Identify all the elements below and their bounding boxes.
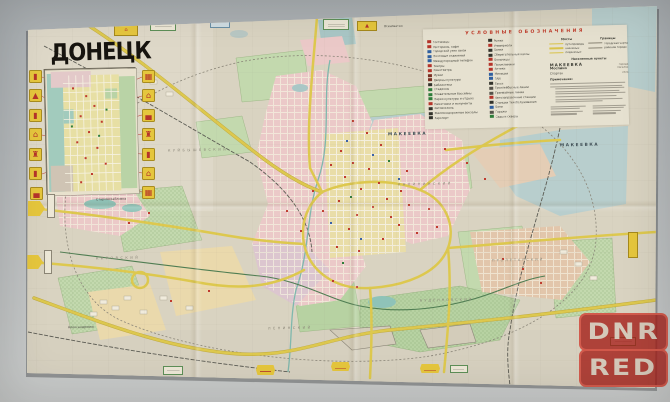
legend-symbol (490, 106, 494, 109)
place-label: Старомихайловка (96, 197, 126, 202)
map-sheet: ▮ ▲ ▮ ⌂ ♜ ▮ ▄ ▦ ⌂ ▄ ♜ ▮ (0, 0, 670, 402)
edge-road-sign (420, 364, 440, 373)
legend-symbol (489, 87, 493, 90)
legend-label: Аэропорт (434, 116, 448, 120)
landmark-badge-icon: ⌂ (142, 167, 155, 180)
legend-symbol (427, 50, 431, 53)
landmark-badge-icon: ▮ (142, 148, 155, 161)
legend-sample-row: районов города (588, 45, 628, 50)
legend-footnote-columns (551, 103, 630, 115)
legend-label: Поликлиники (494, 62, 515, 66)
landmark-badge-icon: ⌂ (142, 89, 155, 102)
landmark-badge-icon: ⌂ (29, 128, 42, 141)
legend-symbol (427, 55, 431, 58)
route-number-marker: 22 (0, 0, 7, 7)
route-number-marker: 24 (0, 0, 7, 7)
watermark-dnr-red: DNR RED (579, 313, 668, 387)
monument-icon: ▦ (145, 73, 153, 81)
route-number-marker: 1 (0, 0, 7, 7)
legend-symbol (429, 102, 433, 105)
route-number-marker: 15 (0, 0, 7, 7)
monument-icon: ▄ (33, 190, 39, 198)
edge-road-sign: ⌂ (114, 25, 138, 36)
place-label: Ясиноватая (384, 24, 403, 28)
landmark-badge-icon: ▮ (29, 167, 42, 180)
legend-right-section: Мосты путепроводы наземные подземные (549, 35, 629, 118)
photo-of-folded-city-map: ▮ ▲ ▮ ⌂ ♜ ▮ ▄ ▦ ⌂ ▄ ♜ ▮ (0, 0, 670, 402)
route-number-marker: 14 (0, 0, 7, 7)
monument-icon: ▦ (145, 189, 153, 197)
landmark-badge-icon: ▲ (29, 89, 42, 102)
route-number-marker: 5 (0, 0, 7, 7)
legend-symbol (489, 91, 493, 94)
route-number-marker: 19 (0, 0, 7, 7)
place-label: Александровка (68, 325, 94, 330)
route-number-marker: 7 (0, 0, 7, 7)
landmark-badge-icon: ▄ (30, 187, 43, 200)
legend-label: Универмаги (494, 43, 512, 47)
legend-symbol (489, 68, 493, 71)
edge-road-sign: ▲ (357, 21, 377, 31)
place-label: МАКЕЕВКА (388, 131, 427, 137)
monument-icon: ▄ (145, 112, 151, 120)
legend-column-2: Рынки Универмаги Банки Сберегательные ка… (488, 37, 546, 119)
route-number-marker: 17 (0, 0, 7, 7)
legend-symbol (428, 93, 432, 96)
road-sample-line (549, 47, 563, 49)
monument-icon: ▮ (146, 151, 150, 159)
legend-symbol (488, 53, 492, 56)
route-number-marker: 10 (0, 0, 7, 7)
settlement-name: Моспино (550, 66, 567, 70)
legend-symbol (428, 88, 432, 91)
map-title: ДОНЕЦК (50, 36, 151, 67)
edge-road-sign (150, 22, 176, 31)
edge-road-sign (44, 250, 52, 274)
legend-symbol (427, 41, 431, 44)
route-number-marker: 18 (0, 0, 7, 7)
route-number-marker: 6 (0, 0, 7, 7)
legend-label: Бани (495, 105, 503, 109)
legend-symbol (488, 49, 492, 52)
edge-road-sign (163, 366, 183, 375)
route-number-marker: 2 (0, 0, 7, 7)
settlement-sample: Спартак села (550, 70, 629, 76)
legend-symbol (489, 72, 493, 75)
monument-icon: ⌂ (33, 131, 38, 139)
legend-panel: УСЛОВНЫЕ ОБОЗНАЧЕНИЯ Гостиницы Рестораны… (423, 25, 629, 130)
legend-symbol (428, 98, 432, 101)
legend-symbol (429, 117, 433, 120)
legend-label: Сберегательные кассы (494, 52, 529, 57)
route-number-marker: 2 (0, 0, 7, 7)
city-center-inset (44, 67, 139, 195)
route-number-marker: 9 (0, 0, 7, 7)
edge-road-sign (450, 365, 468, 373)
legend-symbol (489, 96, 493, 99)
landmark-badge-icon: ♜ (29, 148, 42, 161)
road-sample-line (549, 52, 563, 54)
sign-pictogram-icon: ⌂ (124, 28, 127, 33)
legend-symbol (490, 101, 494, 104)
border-sample-line (588, 43, 602, 44)
legend-symbol (428, 69, 432, 72)
edge-road-sign (47, 194, 55, 218)
route-number-marker: 20 (0, 0, 7, 7)
monument-icon: ▮ (33, 170, 37, 178)
legend-label: Сады и скверы (495, 114, 518, 119)
place-label: МАКЕЕВКА (560, 142, 599, 148)
legend-label: Банки (494, 48, 503, 52)
legend-symbol (428, 79, 432, 82)
legend-symbol (429, 112, 433, 115)
route-number-marker: 13 (0, 0, 7, 7)
landmark-badge-icon: ▄ (142, 109, 155, 122)
legend-symbol (428, 83, 432, 86)
landmark-badge-icon: ▮ (29, 109, 42, 122)
legend-symbol (489, 77, 493, 80)
route-number-marker: 12 (0, 0, 7, 7)
road-sample-line (549, 43, 563, 45)
legend-label: Стадионы (434, 87, 449, 91)
border-sample-line (588, 47, 602, 48)
legend-label: Аптеки (494, 67, 505, 71)
landmark-badge-icon: ▦ (142, 70, 155, 83)
legend-symbol (490, 115, 494, 118)
legend-label: Кинотеатры (433, 68, 452, 72)
route-number-marker: 21 (0, 0, 7, 7)
monument-icon: ♜ (32, 151, 39, 159)
edge-road-sign (628, 232, 638, 258)
legend-symbol (489, 63, 493, 66)
legend-symbol (428, 74, 432, 77)
legend-note-text (550, 82, 629, 103)
landmark-badge-icon: ♜ (142, 128, 155, 141)
inset-artwork (45, 68, 140, 196)
monument-icon: ♜ (145, 131, 152, 139)
monument-icon: ▮ (33, 112, 37, 120)
legend-symbol (490, 110, 494, 113)
legend-symbol (428, 60, 432, 63)
legend-label: Библиотеки (434, 82, 452, 86)
edge-road-sign (331, 362, 350, 371)
legend-symbol (489, 58, 493, 61)
monument-icon: ▮ (33, 73, 37, 81)
legend-item: Аэропорт (429, 114, 485, 120)
settlement-name: Спартак (550, 71, 563, 75)
legend-symbol (489, 82, 493, 85)
legend-subheader: Мосты (549, 36, 584, 41)
edge-road-sign (256, 365, 275, 375)
monument-icon: ▲ (32, 92, 38, 100)
edge-road-sign (210, 20, 230, 28)
landmark-badge-icon: ▦ (142, 186, 155, 199)
edge-road-sign (323, 19, 349, 30)
legend-label: Гаражи (495, 110, 507, 114)
route-number-marker: 4 (0, 0, 7, 7)
legend-label: Милиция (494, 72, 508, 76)
legend-label: Дворцы культуры (434, 77, 461, 82)
legend-symbol (427, 45, 431, 48)
legend-symbol (488, 44, 492, 47)
route-number-marker: 23 (0, 0, 7, 7)
legend-label: Такси (495, 81, 504, 85)
sign-pictogram-icon: ▲ (365, 24, 369, 29)
route-number-marker: 8 (0, 0, 7, 7)
legend-sample-row: подземные (549, 50, 584, 55)
monument-icon: ⌂ (146, 170, 151, 178)
legend-item: Сады и скверы (490, 113, 546, 119)
legend-label: Больницы (494, 57, 509, 61)
monument-icon: ⌂ (146, 92, 151, 100)
legend-symbol (488, 39, 492, 42)
legend-label: Рынки (494, 38, 504, 42)
legend-label: Автовокзалы (434, 106, 454, 110)
legend-label: ГАИ (495, 76, 501, 80)
route-number-marker: 11 (0, 0, 7, 7)
route-number-marker: 3 (0, 0, 7, 7)
legend-column-1: Гостиницы Рестораны, кафе Городской узел… (427, 38, 485, 120)
legend-label: Музеи (433, 73, 442, 77)
legend-symbol (428, 64, 432, 67)
legend-label: Гостиницы (433, 40, 450, 44)
watermark-block-bottom: RED (579, 349, 668, 387)
landmark-badge-icon: ▮ (29, 70, 42, 83)
route-number-marker: 16 (0, 0, 7, 7)
legend-symbol (429, 107, 433, 110)
watermark-block-top: DNR (579, 313, 668, 351)
legend-label: Театры (433, 63, 444, 67)
